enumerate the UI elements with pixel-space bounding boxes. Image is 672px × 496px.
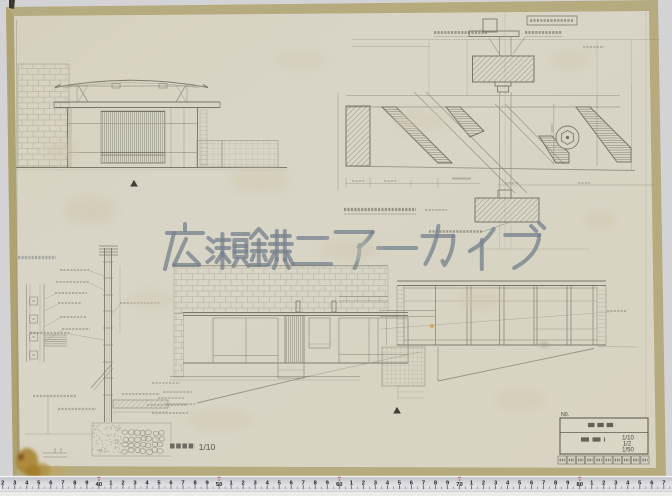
svg-text:2: 2 xyxy=(1,481,4,487)
svg-text:80: 80 xyxy=(576,482,582,488)
svg-text:N0.: N0. xyxy=(561,412,569,418)
svg-text:7: 7 xyxy=(61,481,64,487)
svg-text:2: 2 xyxy=(602,481,605,487)
svg-text:2: 2 xyxy=(362,481,365,487)
svg-text:1/10: 1/10 xyxy=(199,442,216,452)
svg-text:50: 50 xyxy=(216,482,222,488)
svg-text:7: 7 xyxy=(181,481,184,487)
svg-text:7: 7 xyxy=(302,481,305,487)
svg-text:2: 2 xyxy=(482,481,485,487)
svg-text:7: 7 xyxy=(422,481,425,487)
svg-text:7: 7 xyxy=(662,481,665,487)
svg-text:40: 40 xyxy=(96,482,102,488)
svg-text:60: 60 xyxy=(336,482,342,488)
svg-text:70: 70 xyxy=(456,482,462,488)
svg-text:2: 2 xyxy=(121,481,124,487)
svg-text:2: 2 xyxy=(242,481,245,487)
svg-text:7: 7 xyxy=(542,481,545,487)
svg-text:1/50: 1/50 xyxy=(622,448,634,454)
